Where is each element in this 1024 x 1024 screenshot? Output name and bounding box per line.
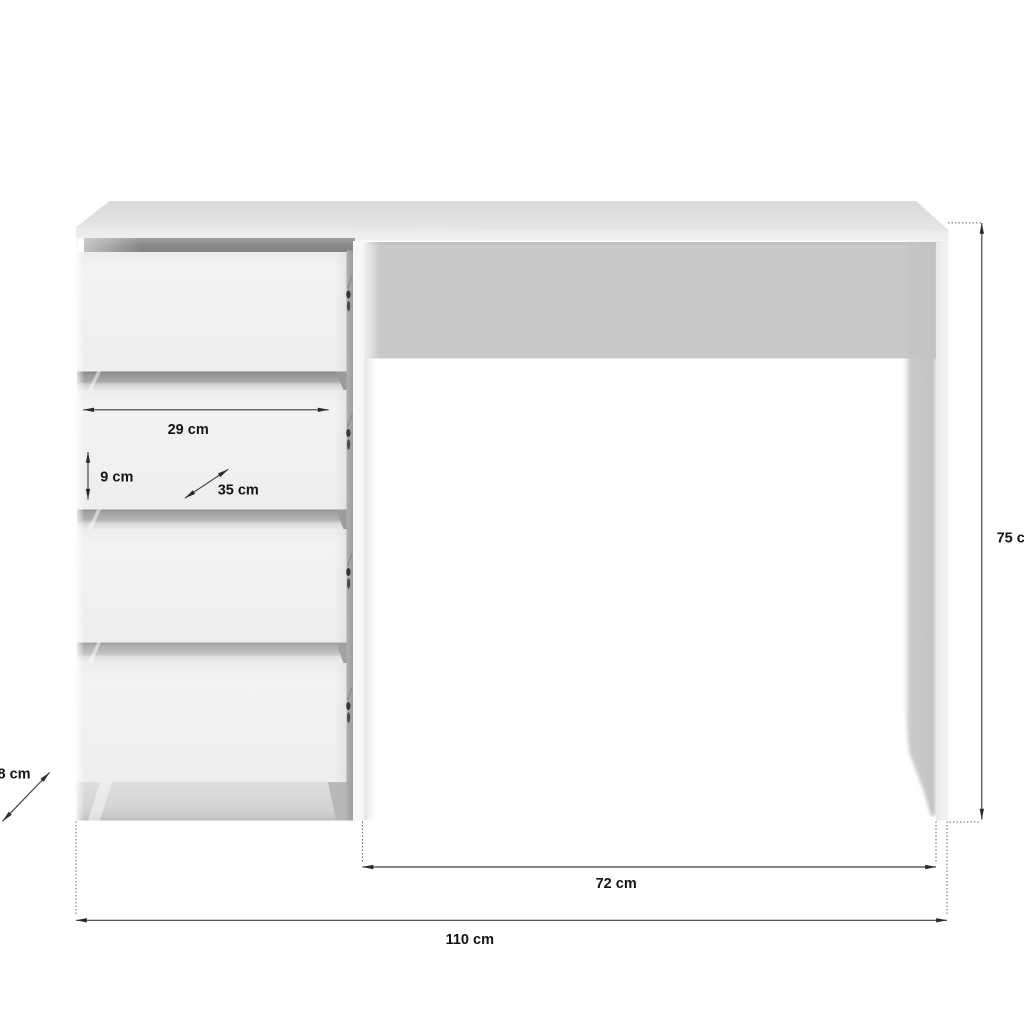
svg-text:29 cm: 29 cm [168,422,209,438]
svg-text:8 cm: 8 cm [0,767,31,783]
svg-text:9 cm: 9 cm [100,470,133,486]
svg-text:35 cm: 35 cm [218,482,259,498]
svg-text:72 cm: 72 cm [596,876,637,892]
svg-text:75 cm: 75 cm [997,531,1024,547]
svg-text:110 cm: 110 cm [446,932,494,948]
